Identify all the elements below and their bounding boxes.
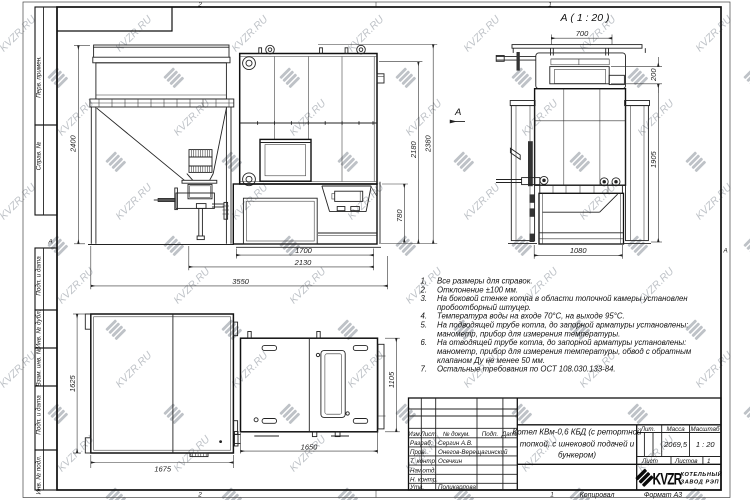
svg-text:манометр, прибор для измерения: манометр, прибор для измерения температу…: [437, 347, 692, 356]
svg-text:2.: 2.: [419, 285, 427, 294]
svg-text:Поликарпова: Поликарпова: [438, 484, 476, 491]
svg-text:1: 1: [707, 458, 710, 465]
svg-text:Нач.отд.: Нач.отд.: [410, 467, 436, 474]
svg-text:А: А: [47, 239, 52, 246]
svg-text:Перв. примен.: Перв. примен.: [36, 56, 43, 98]
svg-text:KVZR.RU: KVZR.RU: [229, 349, 270, 390]
svg-text:Лист: Лист: [420, 431, 437, 438]
svg-text:№ докум.: № докум.: [443, 431, 470, 438]
svg-text:Листов: Листов: [674, 458, 698, 465]
svg-text:Отклонение ±100 мм.: Отклонение ±100 мм.: [437, 285, 518, 294]
svg-text:Подп. и дата: Подп. и дата: [35, 395, 43, 435]
svg-text:Взам. инв. №: Взам. инв. №: [36, 347, 43, 386]
svg-text:Все размеры для справок.: Все размеры для справок.: [437, 277, 533, 286]
svg-text:KVZR.RU: KVZR.RU: [693, 181, 734, 222]
svg-text:Формат А3: Формат А3: [644, 492, 682, 499]
svg-text:1.: 1.: [420, 277, 427, 286]
svg-text:KVZR.RU: KVZR.RU: [287, 433, 328, 474]
svg-text:На отводящей трубе котла, до з: На отводящей трубе котла, до запорной ар…: [437, 338, 686, 347]
svg-text:200: 200: [649, 68, 658, 82]
svg-text:Подп. и дата: Подп. и дата: [35, 256, 43, 296]
svg-text:1: 1: [550, 492, 554, 499]
svg-text:3.: 3.: [420, 294, 427, 303]
svg-text:KVZR.RU: KVZR.RU: [519, 97, 560, 138]
svg-text:1625: 1625: [68, 374, 77, 392]
svg-text:А: А: [454, 107, 461, 118]
svg-text:3550: 3550: [232, 277, 250, 286]
svg-text:1700: 1700: [295, 246, 313, 255]
svg-text:1905: 1905: [649, 150, 658, 168]
svg-text:2380: 2380: [424, 134, 433, 153]
svg-text:Осечкин: Осечкин: [438, 458, 463, 465]
svg-text:бункером): бункером): [558, 451, 596, 460]
svg-text:На боковой стенке котла в обла: На боковой стенке котла в области топочн…: [437, 294, 688, 303]
svg-text:Н. контр.: Н. контр.: [410, 476, 438, 483]
svg-text:KVZR.RU: KVZR.RU: [345, 13, 386, 54]
svg-text:топкой, с шнековой подачей и: топкой, с шнековой подачей и: [520, 440, 635, 449]
svg-text:2400: 2400: [69, 134, 78, 153]
svg-text:Котел КВм-0,6 КБД (с ретортной: Котел КВм-0,6 КБД (с ретортной: [512, 428, 642, 437]
svg-text:1105: 1105: [387, 371, 396, 388]
svg-text:А: А: [722, 248, 727, 255]
svg-text:KVZR.RU: KVZR.RU: [0, 181, 39, 222]
svg-text:1080: 1080: [570, 246, 588, 255]
svg-text:Сергин А.В.: Сергин А.В.: [438, 440, 473, 447]
svg-text:KVZR.RU: KVZR.RU: [693, 349, 734, 390]
svg-text:2069,5: 2069,5: [663, 440, 688, 449]
svg-text:KVZR.RU: KVZR.RU: [0, 13, 39, 54]
svg-text:ЗАВОД РЭП: ЗАВОД РЭП: [681, 480, 720, 486]
svg-text:Лит.: Лит.: [640, 426, 656, 433]
svg-text:КОТЕЛЬНЫЙ: КОТЕЛЬНЫЙ: [681, 470, 723, 478]
svg-text:Справ. №: Справ. №: [36, 142, 43, 171]
svg-text:KVZR.RU: KVZR.RU: [635, 97, 676, 138]
svg-text:700: 700: [576, 29, 589, 38]
svg-text:клапаном Ду не менее 50 мм.: клапаном Ду не менее 50 мм.: [437, 356, 545, 365]
svg-text:Т. контр.: Т. контр.: [410, 458, 437, 465]
svg-text:6.: 6.: [420, 338, 427, 347]
svg-text:2: 2: [197, 492, 202, 499]
svg-text:пробоотборный штуцер.: пробоотборный штуцер.: [437, 303, 531, 312]
svg-text:2180: 2180: [409, 140, 418, 159]
svg-text:4.: 4.: [420, 312, 427, 321]
svg-text:KVZR.RU: KVZR.RU: [229, 181, 270, 222]
svg-text:Температура воды на входе 70°С: Температура воды на входе 70°С, на выход…: [437, 312, 625, 321]
svg-text:KVZR.RU: KVZR.RU: [229, 13, 270, 54]
svg-text:Пров.: Пров.: [410, 449, 426, 456]
svg-text:2130: 2130: [294, 258, 313, 267]
svg-text:KVZR.RU: KVZR.RU: [577, 181, 618, 222]
svg-text:Утв.: Утв.: [409, 484, 424, 491]
svg-text:Подп.: Подп.: [482, 431, 498, 438]
svg-text:1675: 1675: [154, 465, 172, 474]
svg-text:Лист: Лист: [641, 458, 658, 465]
svg-text:5.: 5.: [420, 321, 427, 330]
svg-text:А ( 1 : 20 ): А ( 1 : 20 ): [559, 12, 609, 24]
svg-text:7.: 7.: [420, 365, 427, 374]
svg-text:780: 780: [395, 209, 404, 222]
svg-text:1 : 20: 1 : 20: [696, 440, 716, 449]
svg-text:Масса: Масса: [666, 426, 685, 433]
svg-text:KVZR.RU: KVZR.RU: [461, 13, 502, 54]
svg-text:KVZR.RU: KVZR.RU: [345, 349, 386, 390]
svg-text:KVZR.RU: KVZR.RU: [287, 97, 328, 138]
svg-text:Масштаб: Масштаб: [691, 426, 720, 433]
svg-text:KVZR.RU: KVZR.RU: [693, 13, 734, 54]
svg-text:KVZR: KVZR: [653, 471, 683, 489]
svg-text:Копировал: Копировал: [580, 492, 615, 499]
svg-text:KVZR.RU: KVZR.RU: [113, 349, 154, 390]
svg-text:Остальные требования по ОСТ 10: Остальные требования по ОСТ 108.030.133-…: [437, 365, 616, 374]
svg-text:KVZR.RU: KVZR.RU: [113, 181, 154, 222]
svg-text:KVZR.RU: KVZR.RU: [461, 181, 502, 222]
svg-text:манометр, прибор для измерения: манометр, прибор для измерения температу…: [437, 329, 620, 338]
svg-text:Инв. № дубл.: Инв. № дубл.: [35, 310, 43, 349]
svg-text:Разраб.: Разраб.: [410, 440, 432, 447]
svg-text:KVZR.RU: KVZR.RU: [113, 13, 154, 54]
svg-text:Инв. № подл.: Инв. № подл.: [35, 455, 43, 494]
svg-text:Онегов-Верещагинский: Онегов-Верещагинский: [438, 449, 508, 456]
svg-text:1650: 1650: [301, 442, 319, 451]
svg-text:На подводящей трубе котла, до: На подводящей трубе котла, до запорной а…: [437, 321, 688, 330]
svg-text:Изм.: Изм.: [408, 431, 421, 438]
svg-text:KVZR.RU: KVZR.RU: [403, 97, 444, 138]
svg-text:KVZR.RU: KVZR.RU: [0, 349, 39, 390]
